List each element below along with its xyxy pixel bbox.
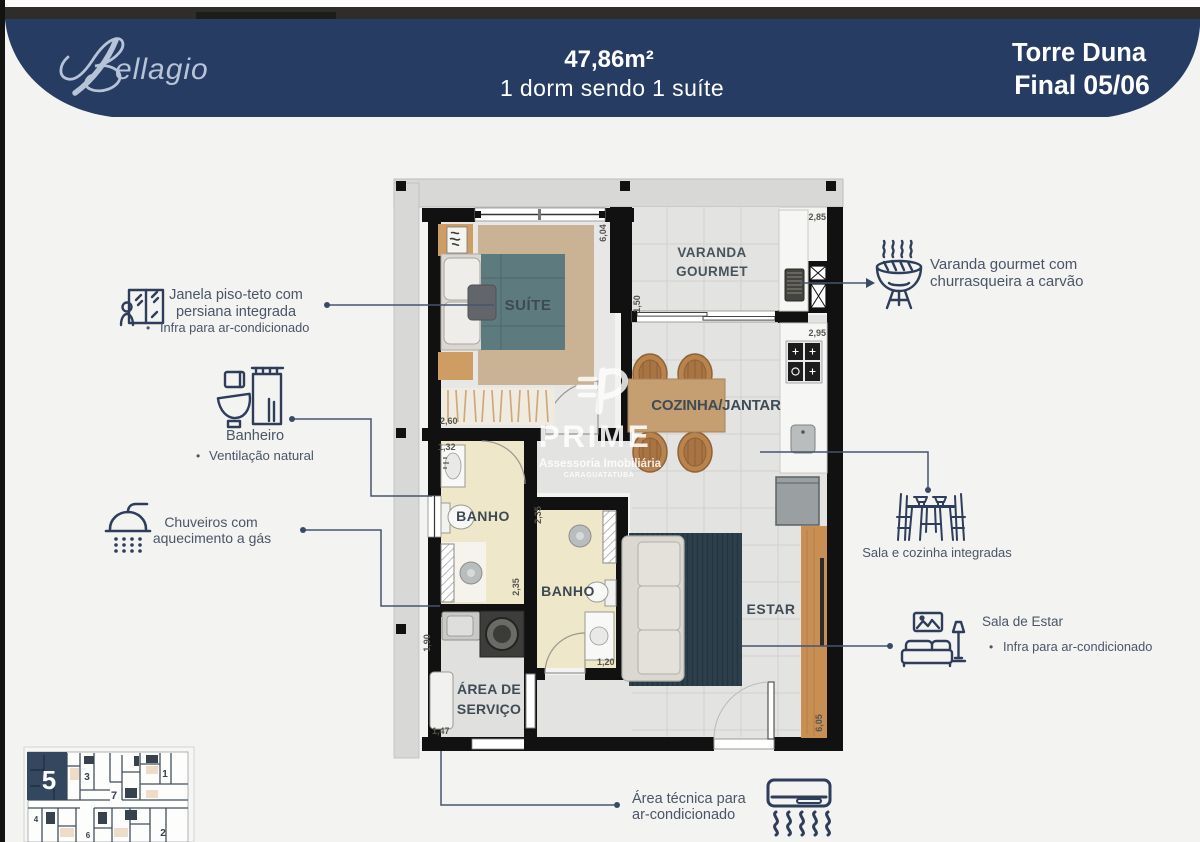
svg-text:6,04: 6,04 — [598, 224, 608, 242]
svg-text:SUÍTE: SUÍTE — [505, 297, 552, 314]
svg-text:1,50: 1,50 — [632, 295, 642, 313]
svg-text:Sala e cozinha integradas: Sala e cozinha integradas — [862, 545, 1012, 560]
svg-text:Assessoria Imobiliária: Assessoria Imobiliária — [539, 458, 662, 470]
svg-text:2,35: 2,35 — [511, 578, 521, 596]
svg-text:Sala de Estar: Sala de Estar — [982, 614, 1064, 629]
svg-text:2,35: 2,35 — [533, 506, 543, 524]
svg-text:BANHO: BANHO — [541, 583, 595, 599]
svg-text:SERVIÇO: SERVIÇO — [457, 701, 521, 717]
svg-text:Final 05/06: Final 05/06 — [1014, 70, 1150, 100]
svg-text:ÁREA DE: ÁREA DE — [457, 681, 521, 697]
svg-text:Área técnica para: Área técnica para — [632, 790, 747, 807]
svg-text:Ventilação natural: Ventilação natural — [209, 448, 314, 463]
svg-text:GOURMET: GOURMET — [676, 264, 748, 279]
svg-text:1,47: 1,47 — [432, 726, 450, 736]
svg-text:Chuveiros com: Chuveiros com — [164, 514, 257, 530]
svg-text:7: 7 — [111, 790, 117, 802]
svg-text:1,20: 1,20 — [597, 657, 615, 667]
svg-text:•: • — [196, 449, 200, 463]
svg-text:COZINHA/JANTAR: COZINHA/JANTAR — [651, 397, 781, 414]
svg-text:5: 5 — [42, 765, 56, 795]
svg-text:Infra para ar-condicionado: Infra para ar-condicionado — [1003, 639, 1152, 654]
svg-text:1,90: 1,90 — [422, 634, 432, 652]
svg-text:ESTAR: ESTAR — [747, 601, 796, 617]
svg-text:2,85: 2,85 — [808, 212, 826, 222]
svg-text:CARAGUATATUBA: CARAGUATATUBA — [564, 472, 635, 479]
svg-text:4: 4 — [34, 815, 39, 824]
svg-text:3: 3 — [84, 772, 90, 783]
svg-text:Varanda gourmet com: Varanda gourmet com — [930, 256, 1077, 273]
svg-text:Janela piso-teto com: Janela piso-teto com — [169, 287, 303, 303]
svg-text:2: 2 — [160, 828, 166, 839]
svg-text:aquecimento a gás: aquecimento a gás — [153, 530, 271, 546]
svg-text:ar-condicionado: ar-condicionado — [632, 807, 735, 823]
svg-text:Banheiro: Banheiro — [226, 428, 284, 444]
svg-text:•: • — [989, 640, 993, 654]
svg-text:BANHO: BANHO — [456, 508, 510, 524]
svg-text:1 dorm sendo 1 suíte: 1 dorm sendo 1 suíte — [500, 75, 724, 101]
svg-text:2,95: 2,95 — [808, 328, 826, 338]
svg-text:Torre Duna: Torre Duna — [1012, 39, 1147, 67]
svg-text:persiana integrada: persiana integrada — [176, 304, 297, 320]
svg-text:Infra para ar-condicionado: Infra para ar-condicionado — [160, 320, 309, 335]
svg-text:churrasqueira a carvão: churrasqueira a carvão — [930, 273, 1083, 290]
svg-text:6: 6 — [86, 831, 91, 840]
svg-text:2,60: 2,60 — [440, 416, 458, 426]
svg-text:6,05: 6,05 — [814, 714, 824, 732]
svg-text:PRIME: PRIME — [539, 418, 652, 454]
svg-text:•: • — [146, 321, 150, 335]
svg-text:1,32: 1,32 — [438, 442, 456, 452]
svg-text:1: 1 — [162, 769, 168, 780]
svg-text:VARANDA: VARANDA — [677, 245, 746, 260]
svg-text:ellagio: ellagio — [115, 53, 209, 86]
svg-text:47,86m²: 47,86m² — [564, 46, 653, 73]
